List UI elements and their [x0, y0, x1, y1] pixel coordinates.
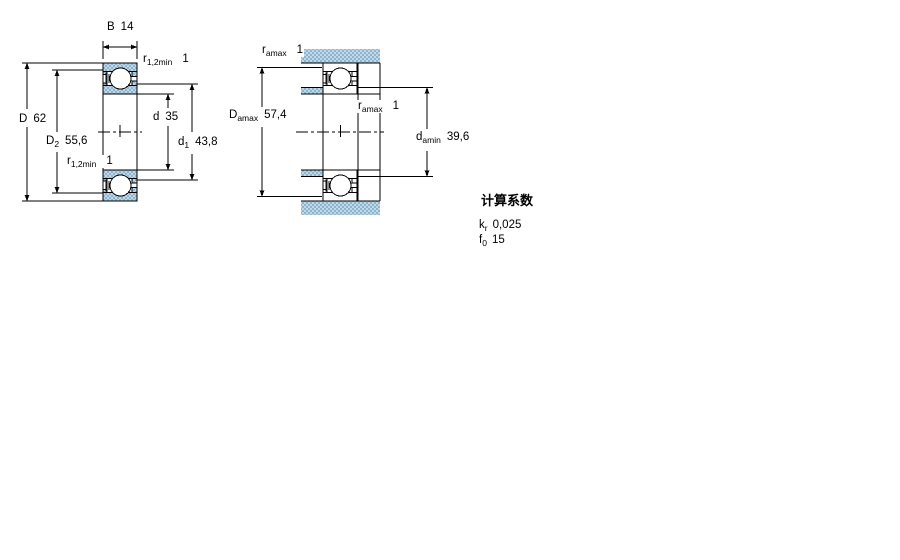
dim-value: 14 — [121, 21, 134, 33]
housing-section-top — [301, 49, 380, 63]
dim-subscript: amin — [422, 135, 440, 145]
right-mounting-figure — [257, 49, 433, 215]
factor-value: 0,025 — [493, 219, 522, 231]
calculation-factors-title: 计算系数 — [480, 194, 534, 207]
factor-kr: kr0,025 — [478, 219, 522, 232]
mounted-bearing-top — [323, 63, 357, 94]
dim-label-D: D62 — [18, 113, 47, 126]
dim-label-d: d35 — [152, 111, 179, 124]
dim-symbol: B — [107, 21, 115, 33]
dim-value: 57,4 — [264, 109, 286, 121]
dim-label-ramax-mid: ramax1 — [357, 100, 400, 113]
dim-label-ramax-top: ramax1 — [261, 44, 304, 57]
shaft-shoulder-bottom — [301, 170, 323, 177]
dim-symbol: d — [153, 111, 159, 123]
dim-subscript: amax — [362, 104, 383, 114]
dim-label-damin: damin39,6 — [415, 131, 470, 144]
dim-subscript: amax — [266, 48, 287, 58]
shaft-shoulder-top — [301, 88, 323, 95]
factor-symbol: k — [479, 219, 485, 231]
dim-label-d1: d143,8 — [177, 136, 219, 149]
technical-drawing — [0, 0, 900, 560]
dim-value: 1 — [297, 44, 303, 56]
dim-value: 35 — [165, 111, 178, 123]
dim-value: 62 — [33, 113, 46, 125]
dim-value: 1 — [182, 53, 188, 65]
dim-label-Damax: Damax57,4 — [228, 109, 288, 122]
dim-label-D2: D255,6 — [45, 135, 88, 148]
dim-value: 43,8 — [195, 136, 217, 148]
dim-symbol: D — [19, 113, 27, 125]
dim-value: 1 — [393, 100, 399, 112]
dim-subscript: 1,2min — [147, 57, 173, 67]
bearing-section-top — [103, 63, 137, 94]
bearing-section-bottom — [103, 170, 137, 201]
dim-value: 55,6 — [65, 135, 87, 147]
factor-subscript: 0 — [482, 238, 487, 248]
housing-section-bottom — [301, 201, 380, 215]
dim-label-r12min-top: r1,2min1 — [142, 53, 190, 66]
dim-subscript: 2 — [54, 139, 59, 149]
dim-value: 39,6 — [447, 131, 469, 143]
factor-f0: f015 — [478, 234, 506, 247]
factor-subscript: r — [485, 223, 488, 233]
dim-label-B: B14 — [106, 21, 134, 34]
mounted-bearing-bottom — [323, 170, 357, 201]
dim-label-r12min-bottom: r1,2min1 — [66, 155, 114, 168]
catalog-drawing-page: B14 r1,2min1 D62 D255,6 r1,2min1 d35 d14… — [0, 0, 900, 560]
dim-subscript: 1,2min — [71, 159, 97, 169]
dim-value: 1 — [106, 155, 112, 167]
dim-subscript: 1 — [184, 140, 189, 150]
dim-subscript: amax — [237, 113, 258, 123]
factor-value: 15 — [492, 234, 505, 246]
